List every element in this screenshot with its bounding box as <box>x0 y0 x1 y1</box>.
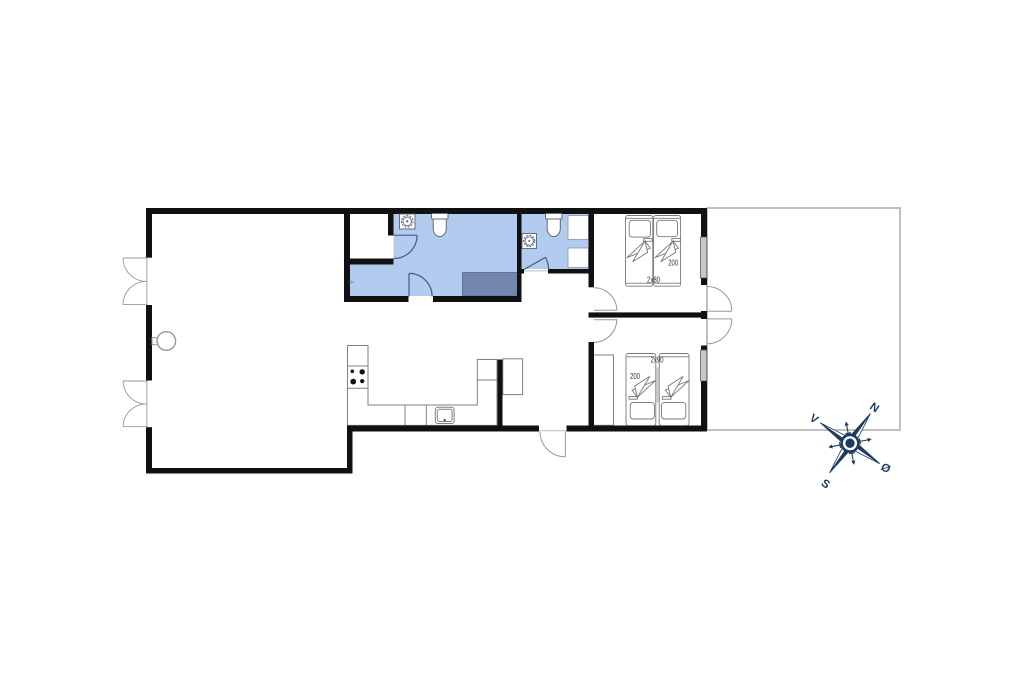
svg-text:200: 200 <box>668 258 678 267</box>
svg-text:2x90: 2x90 <box>651 355 664 364</box>
svg-text:200: 200 <box>630 372 640 381</box>
svg-text:2x80: 2x80 <box>647 276 660 285</box>
